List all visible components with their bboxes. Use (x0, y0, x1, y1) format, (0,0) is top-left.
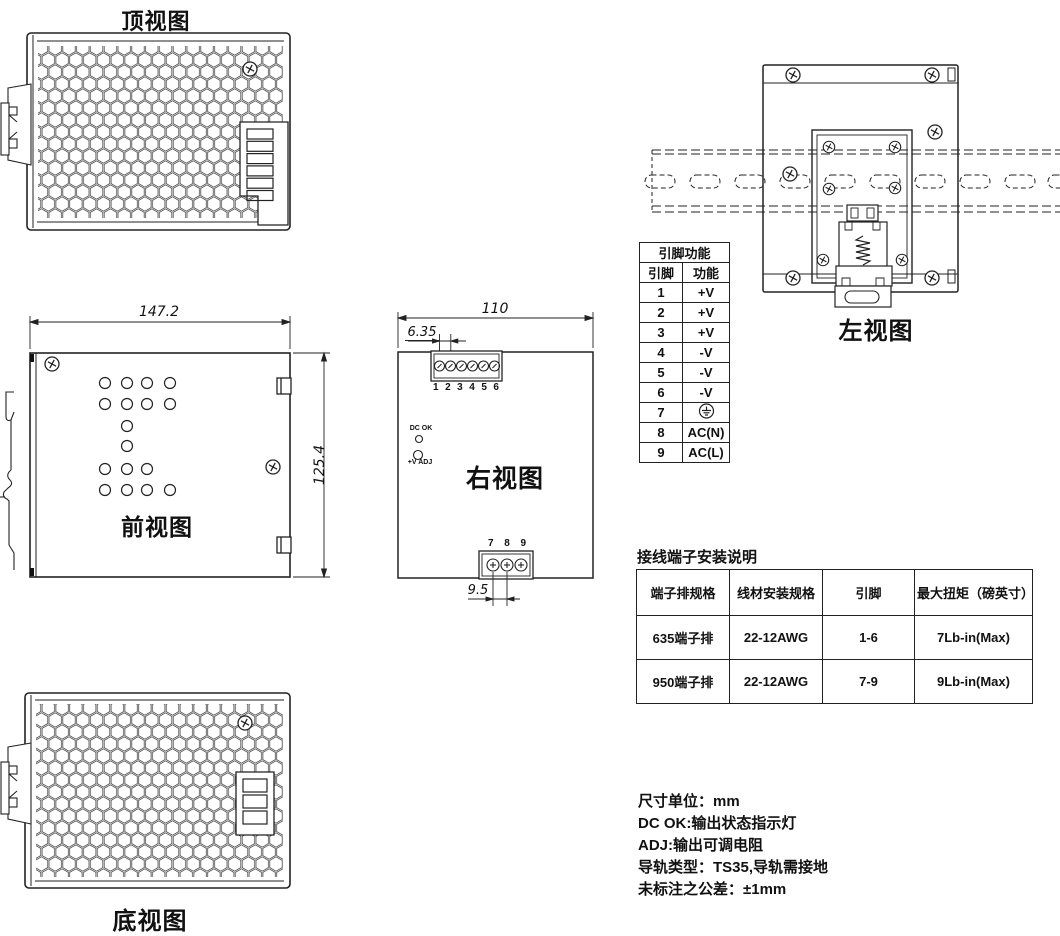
screw-icon (266, 460, 280, 474)
bottom-view-label: 底视图 (90, 901, 210, 936)
top-view-drawing (1, 33, 290, 230)
table-row: 1+V (640, 283, 730, 303)
pin-table-title: 引脚功能 (640, 243, 730, 263)
note-line: 未标注之公差：±1mm (638, 879, 828, 901)
technical-drawing-page: { "views": { "top": { "label": "顶视图" }, … (0, 0, 1060, 932)
table-row: 引脚 功能 (640, 263, 730, 283)
table-row: 7 (640, 403, 730, 423)
screw-icon (786, 68, 800, 82)
dim-width-right: 110 (455, 301, 535, 317)
drawing-notes: 尺寸单位：mm DC OK:输出状态指示灯 ADJ:输出可调电阻 导轨类型：TS… (638, 791, 828, 901)
right-view-label: 右视图 (445, 459, 565, 495)
note-line: DC OK:输出状态指示灯 (638, 813, 828, 835)
screw-icon (243, 62, 257, 76)
dim-147-lines (30, 316, 290, 349)
fn-col-header: 功能 (683, 263, 730, 283)
note-line: 导轨类型：TS35,导轨需接地 (638, 857, 828, 879)
note-line: 尺寸单位：mm (638, 791, 828, 813)
screw-icon (925, 68, 939, 82)
terminal-block-top (431, 351, 502, 381)
pin-col-header: 引脚 (640, 263, 683, 283)
screw-icon (783, 167, 797, 181)
pin-function-table: 引脚功能 引脚 功能 1+V 2+V 3+V 4-V 5-V 6-V 7 8AC… (639, 242, 730, 463)
front-view-label: 前视图 (97, 508, 217, 542)
table-row: 引脚功能 (640, 243, 730, 263)
terminal-block-bottom (479, 551, 533, 579)
table-row: 3+V (640, 323, 730, 343)
terminal-numbers-bottom: 789 (488, 538, 526, 549)
adj-label: +V ADJ (403, 459, 437, 466)
table-row: 950端子排 22-12AWG 7-9 9Lb-in(Max) (637, 660, 1033, 704)
screw-icon (928, 125, 942, 139)
table-row: 635端子排 22-12AWG 1-6 7Lb-in(Max) (637, 616, 1033, 660)
screw-icon (238, 716, 252, 730)
table-row: 6-V (640, 383, 730, 403)
dim-width-front: 147.2 (119, 304, 199, 320)
note-line: ADJ:输出可调电阻 (638, 835, 828, 857)
din-clip-bottom (1, 743, 31, 824)
table-row: 端子排规格 线材安装规格 引脚 最大扭矩（磅英寸） (637, 570, 1033, 616)
din-clip-top (1, 84, 31, 165)
table-row: 2+V (640, 303, 730, 323)
dc-ok-label: DC OK (406, 425, 436, 432)
top-view-label: 顶视图 (95, 4, 217, 36)
terminal-cutout (236, 772, 274, 835)
din-clip-front-profile (0, 392, 14, 570)
screw-icon (786, 271, 800, 285)
dim-pitch-bottom: 9.5 (466, 583, 490, 598)
screw-icon (925, 271, 939, 285)
table-row: 9AC(L) (640, 443, 730, 463)
earth-ground-icon (698, 403, 715, 419)
terminal-install-table: 端子排规格 线材安装规格 引脚 最大扭矩（磅英寸） 635端子排 22-12AW… (636, 569, 1033, 704)
table-row: 5-V (640, 363, 730, 383)
table-row: 4-V (640, 343, 730, 363)
bottom-view-drawing (1, 693, 290, 888)
dim-pitch-top: 6.35 (405, 325, 439, 341)
dim-height-front: 125.4 (312, 435, 328, 495)
terminal-numbers-top: 123456 (433, 382, 499, 393)
terminal-table-title: 接线端子安装说明 (637, 546, 757, 567)
table-row: 8AC(N) (640, 423, 730, 443)
screw-icon (45, 357, 59, 371)
left-view-label: 左视图 (816, 311, 936, 346)
